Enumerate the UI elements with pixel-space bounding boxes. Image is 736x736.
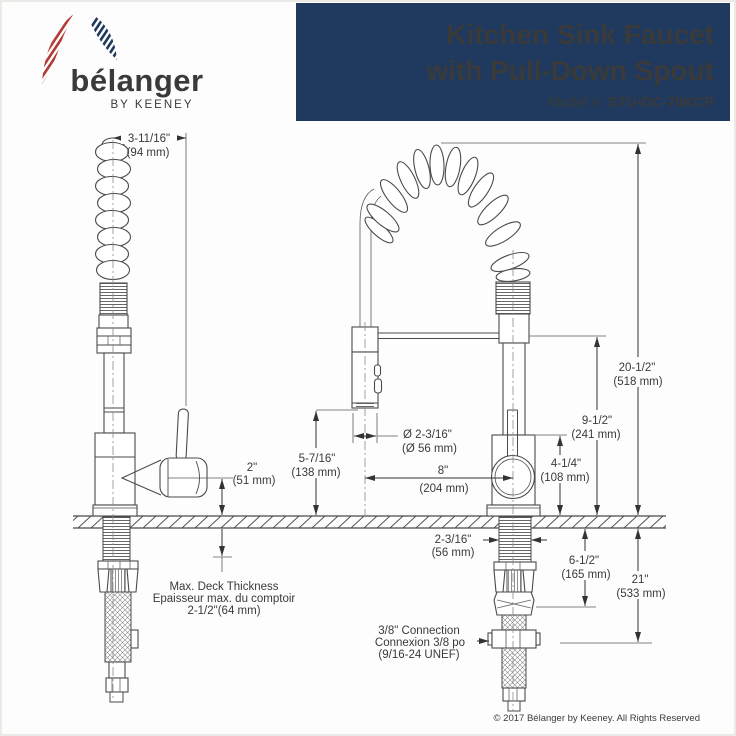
- connection-note-line3: (9/16-24 UNEF): [378, 649, 459, 661]
- model-value: STU-DC-78KCP: [608, 95, 715, 111]
- product-title-line1: Kitchen Sink Faucet: [446, 19, 714, 50]
- dim-sprayer-diameter-mm: (Ø 56 mm): [402, 443, 457, 455]
- dim-shank-width-mm: (56 mm): [432, 547, 475, 559]
- dim-spout-height-in: 2": [247, 462, 257, 474]
- dim-spout-reach-mm: (94 mm): [127, 147, 170, 159]
- dim-hose-length-in: 21": [632, 574, 649, 586]
- check-valve-fitting: [494, 592, 534, 615]
- right-faucet-supply-assembly: [488, 517, 540, 711]
- left-faucet-body: [93, 315, 207, 516]
- right-faucet-base: [487, 505, 540, 516]
- product-title-line2: with Pull-Down Spout: [425, 55, 714, 86]
- spec-sheet-page: bélanger BY KEENEY Kitchen Sink Faucet w…: [0, 0, 736, 736]
- left-faucet-handle: [176, 409, 189, 460]
- left-faucet-base: [93, 505, 137, 516]
- deck-note-line2: Epaisseur max. du comptoir: [153, 593, 296, 605]
- spec-diagram: bélanger BY KEENEY Kitchen Sink Faucet w…: [0, 0, 736, 736]
- right-faucet-body: [487, 314, 540, 516]
- deck-thickness-note: Max. Deck Thickness Epaisseur max. du co…: [153, 581, 296, 617]
- dim-spout-reach-in: 3-11/16": [128, 133, 170, 145]
- dim-sprayer-offset-mm: (204 mm): [419, 483, 468, 495]
- dim-sprayer-height-mm: (138 mm): [291, 467, 340, 479]
- model-number: Model #: STU-DC-78KCP: [548, 95, 714, 111]
- title-box: Kitchen Sink Faucet with Pull-Down Spout…: [296, 3, 730, 121]
- left-faucet-supply-assembly: [98, 517, 138, 702]
- dim-sprayer-offset-in: 8": [438, 465, 448, 477]
- dim-shank-length-in: 6-1/2": [569, 555, 599, 567]
- sprayer-head: [352, 327, 382, 408]
- copyright-text: © 2017 Bélanger by Keeney. All Rights Re…: [494, 713, 700, 724]
- dim-hose-length-mm: (533 mm): [616, 588, 665, 600]
- sprayer-button-spray: [375, 379, 382, 393]
- dim-sprayer-height-in: 5-7/16": [299, 453, 336, 465]
- connection-note-line1: 3/8" Connection: [378, 625, 459, 637]
- dim-column-height-mm: (241 mm): [571, 429, 620, 441]
- belanger-logo: bélanger BY KEENEY: [6, 5, 204, 111]
- connection-note-line2: Connexion 3/8 po: [375, 637, 465, 649]
- sprayer-support-bar: [378, 333, 499, 339]
- supply-connection-nut: [488, 630, 540, 648]
- dim-shank-length-mm: (165 mm): [561, 569, 610, 581]
- dim-overall-height-in: 20-1/2": [619, 362, 656, 374]
- dim-overall-height-mm: (518 mm): [613, 376, 662, 388]
- countertop: [73, 516, 666, 528]
- dim-column-height-in: 9-1/2": [582, 415, 612, 427]
- left-faucet-side-view: [93, 138, 207, 702]
- deck-note-line1: Max. Deck Thickness: [169, 581, 278, 593]
- dim-spout-height-mm: (51 mm): [233, 475, 276, 487]
- dim-sprayer-diameter-in: Ø 2-3/16": [403, 429, 452, 441]
- dim-body-height-mm: (108 mm): [540, 472, 589, 484]
- dim-body-height-in: 4-1/4": [551, 458, 581, 470]
- pulldown-hose-arch-coil: [360, 145, 531, 330]
- model-label: Model #:: [548, 95, 608, 111]
- deck-note-line3: 2-1/2"(64 mm): [187, 605, 260, 617]
- brand-wordmark: bélanger: [70, 63, 203, 98]
- brand-tagline: BY KEENEY: [111, 99, 194, 111]
- sprayer-button-stream: [375, 365, 381, 376]
- connection-note: 3/8" Connection Connexion 3/8 po (9/16-2…: [375, 625, 465, 661]
- dim-shank-width-in: 2-3/16": [435, 534, 472, 546]
